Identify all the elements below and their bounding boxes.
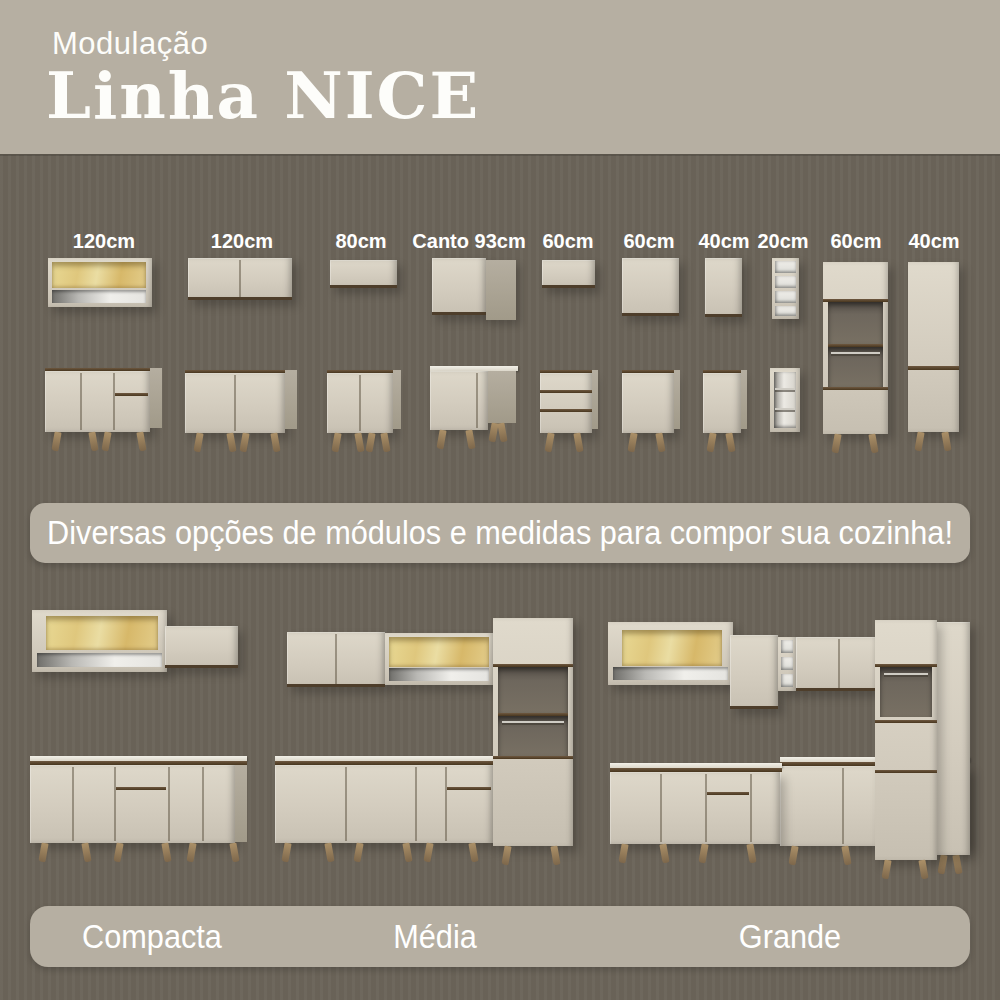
side-panel bbox=[393, 370, 401, 429]
oven-tower bbox=[875, 620, 937, 860]
side-panel bbox=[488, 371, 516, 423]
open-shelf-column bbox=[778, 637, 796, 691]
base-body bbox=[327, 373, 393, 433]
cubby bbox=[781, 657, 793, 670]
tower-body bbox=[823, 262, 888, 434]
legs bbox=[53, 432, 97, 452]
cubby bbox=[775, 306, 796, 316]
info-banner-text: Diversas opções de módulos e medidas par… bbox=[47, 514, 953, 552]
legs bbox=[355, 843, 411, 863]
side-panel bbox=[592, 370, 598, 429]
door-seam bbox=[705, 774, 707, 842]
wood-trim bbox=[188, 297, 292, 300]
cubby bbox=[775, 276, 796, 288]
legs bbox=[708, 433, 734, 453]
module-label-60cm: 60cm bbox=[623, 230, 674, 253]
legs bbox=[425, 843, 477, 863]
legs bbox=[833, 434, 877, 454]
door-seam bbox=[72, 767, 74, 841]
wall-cabinet-120-glass bbox=[48, 258, 152, 307]
base-run bbox=[30, 765, 235, 843]
legs bbox=[367, 433, 389, 453]
legs bbox=[188, 843, 238, 863]
base-body bbox=[45, 371, 150, 432]
set-names-bar: Compacta Média Grande bbox=[30, 906, 970, 967]
door-seam bbox=[842, 768, 844, 844]
corner-base-cabinet-93 bbox=[430, 366, 520, 454]
legs bbox=[790, 846, 850, 866]
wood-trim bbox=[796, 688, 880, 691]
open-shelf bbox=[52, 290, 146, 303]
door-seam bbox=[335, 634, 337, 685]
kitchen-set-grande bbox=[605, 618, 970, 882]
door-seam bbox=[445, 767, 447, 841]
rail bbox=[884, 673, 928, 675]
rack-interior bbox=[774, 372, 796, 428]
wall-shelf-20 bbox=[772, 258, 799, 319]
drawer-trim bbox=[115, 393, 148, 396]
base-cabinet-60-drawers bbox=[540, 370, 598, 454]
cubby bbox=[775, 291, 796, 303]
glass-panel bbox=[52, 262, 146, 288]
glass-panel bbox=[46, 616, 158, 650]
header-subtitle: Modulação bbox=[52, 26, 208, 62]
oven-tower bbox=[493, 618, 573, 846]
door-seam bbox=[359, 375, 361, 431]
drawer-trim bbox=[540, 390, 592, 393]
info-banner: Diversas opções de módulos e medidas par… bbox=[30, 503, 970, 563]
drawer-trim bbox=[707, 792, 749, 795]
cubby bbox=[781, 674, 793, 687]
cubby bbox=[781, 640, 793, 653]
base-body bbox=[703, 373, 741, 433]
door-seam bbox=[113, 373, 115, 430]
side-panel bbox=[150, 368, 162, 428]
wood-trim bbox=[705, 314, 742, 317]
wall-unit-glass bbox=[608, 622, 733, 685]
base-body bbox=[622, 373, 674, 433]
corner-door bbox=[432, 258, 486, 315]
wall-cabinet-120-2-door bbox=[188, 258, 292, 300]
glass-panel bbox=[622, 630, 722, 666]
rail bbox=[502, 721, 564, 723]
module-label-canto-93cm: Canto 93cm bbox=[412, 230, 525, 253]
legs bbox=[195, 433, 235, 453]
base-cabinet-40-door bbox=[703, 370, 747, 454]
wood-trim bbox=[287, 684, 385, 687]
tall-cabinet-60-oven-tower bbox=[823, 262, 888, 454]
kitchen-set-compacta bbox=[30, 608, 248, 870]
wall-unit-2-door bbox=[796, 637, 880, 691]
module-label-120cm: 120cm bbox=[211, 230, 273, 253]
door-seam bbox=[202, 767, 204, 841]
legs bbox=[546, 433, 582, 453]
door-seam bbox=[750, 774, 752, 842]
legs bbox=[939, 855, 961, 875]
door-seam bbox=[80, 373, 82, 430]
door-seam bbox=[476, 373, 478, 428]
open-shelf bbox=[389, 668, 489, 681]
door-seam bbox=[345, 767, 347, 841]
cubby bbox=[775, 261, 796, 273]
module-label-120cm-glass: 120cm bbox=[73, 230, 135, 253]
module-label-40cm-tall: 40cm bbox=[908, 230, 959, 253]
legs bbox=[103, 432, 145, 452]
door-seam bbox=[415, 767, 417, 841]
side-panel bbox=[235, 765, 247, 842]
wood-trim bbox=[730, 706, 778, 709]
legs bbox=[115, 843, 170, 863]
corner-wall-cabinet-93 bbox=[432, 258, 516, 322]
base-cabinet-80-2-door bbox=[327, 370, 401, 454]
wood-trim bbox=[622, 313, 679, 316]
legs bbox=[629, 433, 664, 453]
module-label-40cm: 40cm bbox=[698, 230, 749, 253]
drawer-trim bbox=[116, 787, 166, 790]
module-label-20cm: 20cm bbox=[757, 230, 808, 253]
wood-trim bbox=[493, 756, 573, 759]
door-seam bbox=[239, 260, 241, 298]
side-panel bbox=[674, 370, 680, 429]
microwave-niche bbox=[828, 347, 883, 387]
side-panel bbox=[486, 260, 516, 320]
base-cabinet-120-3-door-drawer bbox=[45, 368, 162, 454]
rail bbox=[831, 352, 880, 354]
rail bbox=[775, 408, 795, 410]
wall-cabinet-40 bbox=[705, 258, 742, 317]
base-run bbox=[275, 765, 493, 843]
door-seam bbox=[168, 767, 170, 841]
door-seam bbox=[234, 375, 236, 431]
legs bbox=[333, 433, 363, 453]
base-run-left bbox=[610, 772, 780, 844]
legs bbox=[916, 432, 950, 452]
set-label-media: Média bbox=[393, 918, 477, 956]
kitchen-set-media bbox=[275, 616, 575, 870]
promo-graphic: Modulação Linha NICE 120cm 120cm 80cm Ca… bbox=[0, 0, 1000, 1000]
wood-trim bbox=[542, 285, 595, 288]
microwave-niche bbox=[498, 716, 568, 756]
wood-trim bbox=[875, 770, 937, 773]
set-label-compacta: Compacta bbox=[82, 918, 222, 956]
open-shelf bbox=[37, 653, 162, 667]
wood-trim bbox=[165, 665, 238, 668]
base-cabinet-60-door bbox=[622, 370, 680, 454]
legs bbox=[700, 844, 755, 864]
base-body bbox=[540, 373, 592, 433]
glass-panel bbox=[389, 637, 489, 667]
side-panel bbox=[741, 370, 747, 429]
legs bbox=[620, 844, 668, 864]
open-shelf bbox=[613, 667, 728, 680]
wood-trim bbox=[875, 720, 937, 723]
oven-niche bbox=[828, 302, 883, 344]
microwave-niche bbox=[880, 667, 932, 717]
wood-trim bbox=[330, 285, 397, 288]
tall-end-cabinet bbox=[935, 622, 970, 855]
corner-wall-unit bbox=[730, 635, 778, 709]
module-label-60cm-tall: 60cm bbox=[830, 230, 881, 253]
legs bbox=[503, 846, 559, 866]
wall-unit-door bbox=[165, 626, 238, 668]
wall-cabinet-60 bbox=[622, 258, 679, 316]
door-seam bbox=[838, 639, 840, 689]
wood-trim bbox=[432, 312, 486, 315]
wall-unit-2-door bbox=[287, 632, 385, 687]
module-label-60cm-low: 60cm bbox=[542, 230, 593, 253]
wood-trim bbox=[908, 366, 959, 370]
base-body bbox=[430, 371, 488, 430]
door-seam bbox=[660, 774, 662, 842]
tall-cabinet-40 bbox=[908, 262, 959, 452]
tall-body bbox=[908, 262, 959, 432]
module-label-80cm: 80cm bbox=[335, 230, 386, 253]
wall-cabinet-60-low bbox=[542, 260, 595, 288]
legs bbox=[883, 860, 927, 880]
base-cabinet-120-2-door bbox=[185, 370, 297, 454]
legs bbox=[283, 843, 333, 863]
legs bbox=[438, 430, 474, 450]
side-panel bbox=[285, 370, 297, 429]
legs bbox=[490, 423, 506, 443]
wall-cabinet-80 bbox=[330, 260, 397, 288]
base-rack-20 bbox=[770, 368, 800, 432]
door-seam bbox=[114, 767, 116, 841]
drawer-trim bbox=[447, 787, 491, 790]
set-label-grande: Grande bbox=[739, 918, 841, 956]
base-body bbox=[185, 373, 285, 433]
wall-unit-glass bbox=[32, 610, 167, 672]
header: Modulação Linha NICE bbox=[0, 0, 1000, 154]
wall-unit-glass bbox=[385, 633, 493, 685]
wood-trim bbox=[823, 387, 888, 390]
drawer-trim bbox=[540, 409, 592, 412]
oven-niche bbox=[498, 667, 568, 713]
rail bbox=[775, 388, 795, 390]
legs bbox=[40, 843, 90, 863]
legs bbox=[241, 433, 279, 453]
page-title: Linha NICE bbox=[46, 58, 480, 134]
